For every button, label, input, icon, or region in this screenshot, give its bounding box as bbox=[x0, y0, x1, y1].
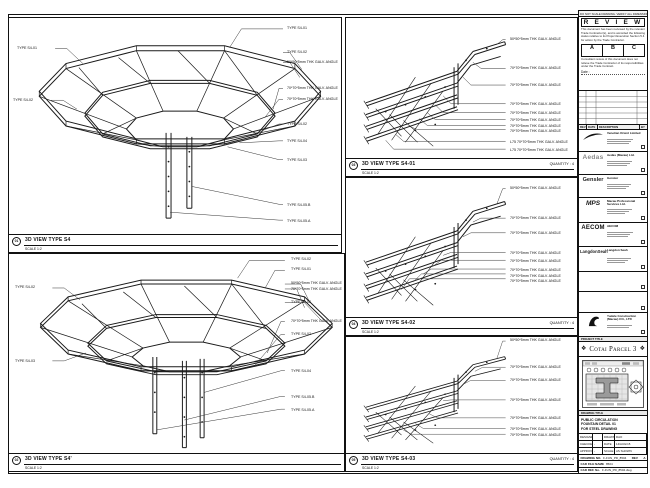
callout-label: 70*70*5mm THK GALV. ANGLE bbox=[510, 251, 561, 256]
aecom-logo-icon: AECOM bbox=[580, 225, 606, 231]
consultant-row-langdon-seah: LangdonSeah Langdon Seah bbox=[579, 247, 647, 272]
key-plan bbox=[579, 357, 647, 411]
signoff-label: SCALE bbox=[603, 448, 615, 455]
reviewed-stamp-title: R E V I E W E D bbox=[581, 18, 645, 27]
by-col-header: BY bbox=[640, 125, 647, 129]
consultant-row-venetian: Venetian Orient Limited bbox=[579, 130, 647, 152]
panel-scale: SCALE 1:2 bbox=[362, 466, 379, 470]
stamp-date-label: Date : bbox=[581, 70, 645, 75]
approval-checkbox bbox=[641, 168, 645, 172]
contractor-row: Yudele Construction (Macau) CO., LTD bbox=[579, 313, 647, 337]
signoff-label: DATE bbox=[603, 441, 615, 448]
revision-grid-lines-icon bbox=[579, 91, 647, 124]
signoff-value: AS SHOWN bbox=[615, 448, 647, 455]
panel-3d-view-type-s4-01: 50*50*5mm THK GALV. ANGLE 70*70*5mm THK … bbox=[345, 17, 578, 177]
signoff-label: CHECKED bbox=[579, 441, 593, 448]
callout-label: 70*70*5mm THK GALV. ANGLE bbox=[510, 279, 561, 284]
project-name: Cotai Parcel 3 bbox=[589, 346, 636, 353]
consultant-name: Aedas (Macau) Ltd. bbox=[607, 154, 645, 157]
address-lines bbox=[607, 232, 633, 239]
callout-label: 70*70*5mm THK GALV. ANGLE bbox=[291, 287, 342, 292]
callout-label: 70*70*5mm THK GALV. ANGLE bbox=[287, 97, 338, 102]
drawing-no-label: DRAWING NO. bbox=[581, 456, 602, 460]
consultant-row-mps: MPS Macau Professional Services Ltd. bbox=[579, 198, 647, 223]
key-plan-map-icon bbox=[582, 360, 644, 408]
approval-checkbox bbox=[641, 265, 645, 269]
desc-col-header: DESCRIPTION bbox=[598, 125, 640, 129]
panel-title-bar: 03 3D VIEW TYPE S4-01 SCALE 1:2 QUANTITY… bbox=[346, 158, 577, 176]
consultant-name: Macau Professional Services Ltd. bbox=[607, 200, 645, 207]
consultant-name: AECOM bbox=[607, 225, 645, 228]
title-underline bbox=[361, 464, 574, 466]
title-underline bbox=[361, 328, 574, 330]
callout-label: 50*50*5mm THK GALV. ANGLE bbox=[510, 37, 561, 42]
signoff-value: - bbox=[593, 441, 603, 448]
approval-checkbox bbox=[641, 145, 645, 149]
status-boxes: A B C bbox=[581, 44, 645, 57]
signoff-value: - bbox=[593, 448, 603, 455]
signoff-value: DAO bbox=[615, 434, 647, 441]
address-lines bbox=[607, 258, 631, 265]
aedas-logo-icon: Aedas bbox=[580, 154, 606, 161]
banner-ornament-icon: ❖ bbox=[640, 346, 645, 352]
detail-bubble: 05 bbox=[349, 456, 358, 465]
callout-label: 50*50*5mm THK GALV. ANGLE bbox=[291, 281, 342, 286]
title-underline bbox=[24, 245, 338, 247]
drawing-title: PUBLIC CIRCULATION FOUNTAIN DETAIL 01 FO… bbox=[579, 416, 647, 434]
rev-value: A bbox=[643, 456, 645, 460]
signoff-label: DRAWN bbox=[603, 434, 615, 441]
angle-bundle-drawing-icon bbox=[346, 178, 577, 317]
callout-label: TYPE S4-02 bbox=[15, 285, 35, 290]
callout-label: 70*70*5mm THK GALV. ANGLE bbox=[510, 427, 561, 432]
callout-label: L75 70*70*5mm THK GALV. ANGLE bbox=[510, 148, 568, 153]
cad-file-value: 8504 bbox=[606, 462, 613, 466]
drawing-number-block: DRAWING NO. F-FUN_PD_8504 REV A CAD FILE… bbox=[579, 455, 647, 473]
callout-label: 70*70*5mm THK GALV. ANGLE bbox=[510, 378, 561, 383]
callout-label: 70*70*5mm THK GALV. ANGLE bbox=[510, 259, 561, 264]
callout-label: TYPE S4-02 bbox=[287, 50, 307, 55]
revision-table bbox=[579, 91, 647, 125]
approval-checkbox bbox=[641, 285, 645, 289]
address-lines bbox=[607, 139, 633, 146]
title-underline bbox=[361, 169, 574, 171]
langdon-seah-logo-icon: LangdonSeah bbox=[580, 249, 606, 254]
callout-label: TYPE S4-01 bbox=[291, 267, 311, 272]
consultant-row-aecom: AECOM AECOM bbox=[579, 223, 647, 247]
callout-label: TYPE S4-02 bbox=[13, 98, 33, 103]
signoff-label: DESIGNED bbox=[579, 434, 593, 441]
panel-3d-view-type-s4-02: 50*50*5mm THK GALV. ANGLE 70*70*5mm THK … bbox=[345, 177, 578, 336]
review-stamp: R E V I E W E D This document has been r… bbox=[579, 17, 647, 91]
panel-scale: SCALE 1:2 bbox=[25, 466, 42, 470]
signoff-value: 14/AUG/15 bbox=[615, 441, 647, 448]
cad-ref-value: F-FUN_PD_8504.dwg bbox=[602, 468, 632, 472]
callout-label: TYPE S4-04 bbox=[291, 369, 311, 374]
callout-label: TYPE S4-05.A bbox=[287, 219, 310, 224]
drawing-no-value: F-FUN_PD_8504 bbox=[603, 456, 626, 460]
callout-label: 70*70*5mm THK GALV. ANGLE bbox=[510, 129, 561, 134]
callout-label: 70*70*5mm THK GALV. ANGLE bbox=[510, 398, 561, 403]
quantity-note: QUANTITY : 4 bbox=[550, 321, 574, 325]
consultant-name: Langdon Seah bbox=[607, 249, 645, 252]
callout-label: TYPE S4-01 bbox=[287, 26, 307, 31]
consultant-name: Gensler bbox=[607, 177, 645, 180]
callout-label: 50*50*5mm THK GALV. ANGLE bbox=[287, 60, 338, 65]
mps-logo-icon: MPS bbox=[580, 200, 606, 207]
callout-label: 70*70*5mm THK GALV. ANGLE bbox=[510, 111, 561, 116]
status-box-c: C bbox=[624, 45, 644, 56]
approval-checkbox bbox=[641, 240, 645, 244]
signoff-label: APPROVED bbox=[579, 448, 593, 455]
contractor-bird-logo-icon bbox=[580, 315, 606, 329]
panel-title: 3D VIEW TYPE S4-01 bbox=[362, 161, 415, 167]
panel-3d-view-type-s4-alt: TYPE S4-02 TYPE S4-01 50*50*5mm THK GALV… bbox=[8, 253, 345, 472]
approval-checkbox bbox=[641, 191, 645, 195]
detail-bubble: 02 bbox=[12, 456, 21, 465]
callout-label: 70*70*5mm THK GALV. ANGLE bbox=[287, 86, 338, 91]
stamp-body-text: This document has been reviewed by the r… bbox=[581, 28, 645, 42]
callout-label: 70*70*5mm THK GALV. ANGLE bbox=[510, 118, 561, 123]
title-block: DO NOT SCALE DRAWING. VERIFY ALL DIMENSI… bbox=[578, 10, 648, 474]
callout-label: TYPE S4-02 bbox=[287, 122, 307, 127]
callout-label: 70*70*5mm THK GALV. ANGLE bbox=[510, 268, 561, 273]
callout-label: TYPE S4-05.B bbox=[291, 395, 314, 400]
cad-ref-label: CAD REF. No. bbox=[581, 468, 601, 472]
callout-label: TYPE S4-01 bbox=[17, 46, 37, 51]
detail-bubble: 04 bbox=[349, 320, 358, 329]
rev-col-header: REV bbox=[579, 125, 587, 129]
panel-title-bar: 04 3D VIEW TYPE S4-02 SCALE 1:2 QUANTITY… bbox=[346, 317, 577, 335]
sands-swoosh-logo-icon bbox=[580, 132, 606, 142]
address-lines bbox=[607, 209, 632, 216]
callout-label: TYPE S4-03 bbox=[287, 158, 307, 163]
panel-3d-view-type-s4-03: 50*50*5mm THK GALV. ANGLE 70*70*5mm THK … bbox=[345, 336, 578, 472]
panel-title-bar: 01 3D VIEW TYPE S4 SCALE 1:2 bbox=[9, 234, 341, 252]
callout-label: 70*70*5mm THK GALV. ANGLE bbox=[510, 83, 561, 88]
callout-label: 70*70*5mm THK GALV. ANGLE bbox=[510, 66, 561, 71]
consultant-row-empty-2 bbox=[579, 292, 647, 313]
approval-checkbox bbox=[641, 330, 645, 334]
callout-label: 70*70*5mm THK GALV. ANGLE bbox=[510, 216, 561, 221]
stamp-body-text-2: Consultant review of this document does … bbox=[581, 58, 645, 69]
callout-label: 70*70*5mm THK GALV. ANGLE bbox=[510, 433, 561, 438]
panel-title: 3D VIEW TYPE S4 bbox=[25, 237, 71, 243]
status-box-b: B bbox=[603, 45, 624, 56]
callout-label: 70*70*5mm THK GALV. ANGLE bbox=[510, 102, 561, 107]
panel-title-bar: 02 3D VIEW TYPE S4' SCALE 1:2 bbox=[9, 453, 344, 471]
callout-label: TYPE S4-05.A bbox=[291, 408, 314, 413]
signoff-table: DESIGNED DRAWN DAO CHECKED - DATE 14/AUG… bbox=[579, 434, 647, 455]
callout-label: TYPE S4-05.B bbox=[287, 203, 310, 208]
approval-checkbox bbox=[641, 216, 645, 220]
callout-label: 70*70*5mm THK GALV. ANGLE bbox=[291, 319, 342, 324]
gensler-logo-icon: Gensler bbox=[580, 177, 606, 183]
detail-bubble: 03 bbox=[349, 161, 358, 170]
panel-scale: SCALE 1:2 bbox=[25, 247, 42, 251]
signoff-value bbox=[593, 434, 603, 441]
callout-label: 50*50*5mm THK GALV. ANGLE bbox=[510, 338, 561, 343]
consultant-row-gensler: Gensler Gensler bbox=[579, 175, 647, 198]
panel-title: 3D VIEW TYPE S4-02 bbox=[362, 320, 415, 326]
address-lines bbox=[607, 184, 631, 191]
address-lines bbox=[607, 161, 632, 168]
cad-file-label: CAD FILE NAME bbox=[581, 462, 605, 466]
cad-ref-row: CAD REF. No. F-FUN_PD_8504.dwg bbox=[579, 468, 647, 473]
callout-label: TYPE S4-02 bbox=[291, 257, 311, 262]
date-col-header: DATE bbox=[587, 125, 598, 129]
callout-label: L75 70*70*5mm THK GALV. ANGLE bbox=[510, 140, 568, 145]
panel-scale: SCALE 1:2 bbox=[362, 330, 379, 334]
approval-checkbox bbox=[641, 306, 645, 310]
callout-label: 50*50*5mm THK GALV. ANGLE bbox=[510, 186, 561, 191]
callout-label: 70*70*5mm THK GALV. ANGLE bbox=[510, 231, 561, 236]
quantity-note: QUANTITY : 4 bbox=[550, 162, 574, 166]
rev-label: REV bbox=[632, 456, 638, 460]
callout-label: TYPE S4-04 bbox=[287, 139, 307, 144]
status-box-a: A bbox=[582, 45, 603, 56]
drawing-sheet: TYPE S4-01 TYPE S4-02 50*50*5mm THK GALV… bbox=[0, 0, 650, 488]
address-lines bbox=[607, 325, 632, 329]
consultant-name: Venetian Orient Limited bbox=[607, 132, 645, 135]
detail-bubble: 01 bbox=[12, 237, 21, 246]
project-banner: ❖ Cotai Parcel 3 ❖ bbox=[579, 342, 647, 357]
callout-label: TYPE S4-02 bbox=[291, 332, 311, 337]
panel-scale: SCALE 1:2 bbox=[362, 171, 379, 175]
drawing-title-line: FOR STEEL DRAWING bbox=[581, 427, 645, 432]
panel-title: 3D VIEW TYPE S4' bbox=[25, 456, 72, 462]
callout-label: 70*70*5mm THK GALV. ANGLE bbox=[510, 365, 561, 370]
panel-title: 3D VIEW TYPE S4-03 bbox=[362, 456, 415, 462]
callout-label: TYPE S4-02 bbox=[291, 300, 311, 305]
contractor-name: Yudele Construction (Macau) CO., LTD bbox=[607, 315, 645, 322]
panel-3d-view-type-s4: TYPE S4-01 TYPE S4-02 50*50*5mm THK GALV… bbox=[8, 17, 342, 253]
callout-label: TYPE S4-03 bbox=[15, 359, 35, 364]
consultant-row-aedas: Aedas Aedas (Macau) Ltd. bbox=[579, 152, 647, 175]
callout-label: 70*70*5mm THK GALV. ANGLE bbox=[510, 416, 561, 421]
consultant-row-empty-1 bbox=[579, 272, 647, 292]
quantity-note: QUANTITY : 4 bbox=[550, 457, 574, 461]
panel-title-bar: 05 3D VIEW TYPE S4-03 SCALE 1:2 QUANTITY… bbox=[346, 453, 577, 471]
banner-ornament-icon: ❖ bbox=[581, 346, 586, 352]
title-underline bbox=[24, 464, 341, 466]
